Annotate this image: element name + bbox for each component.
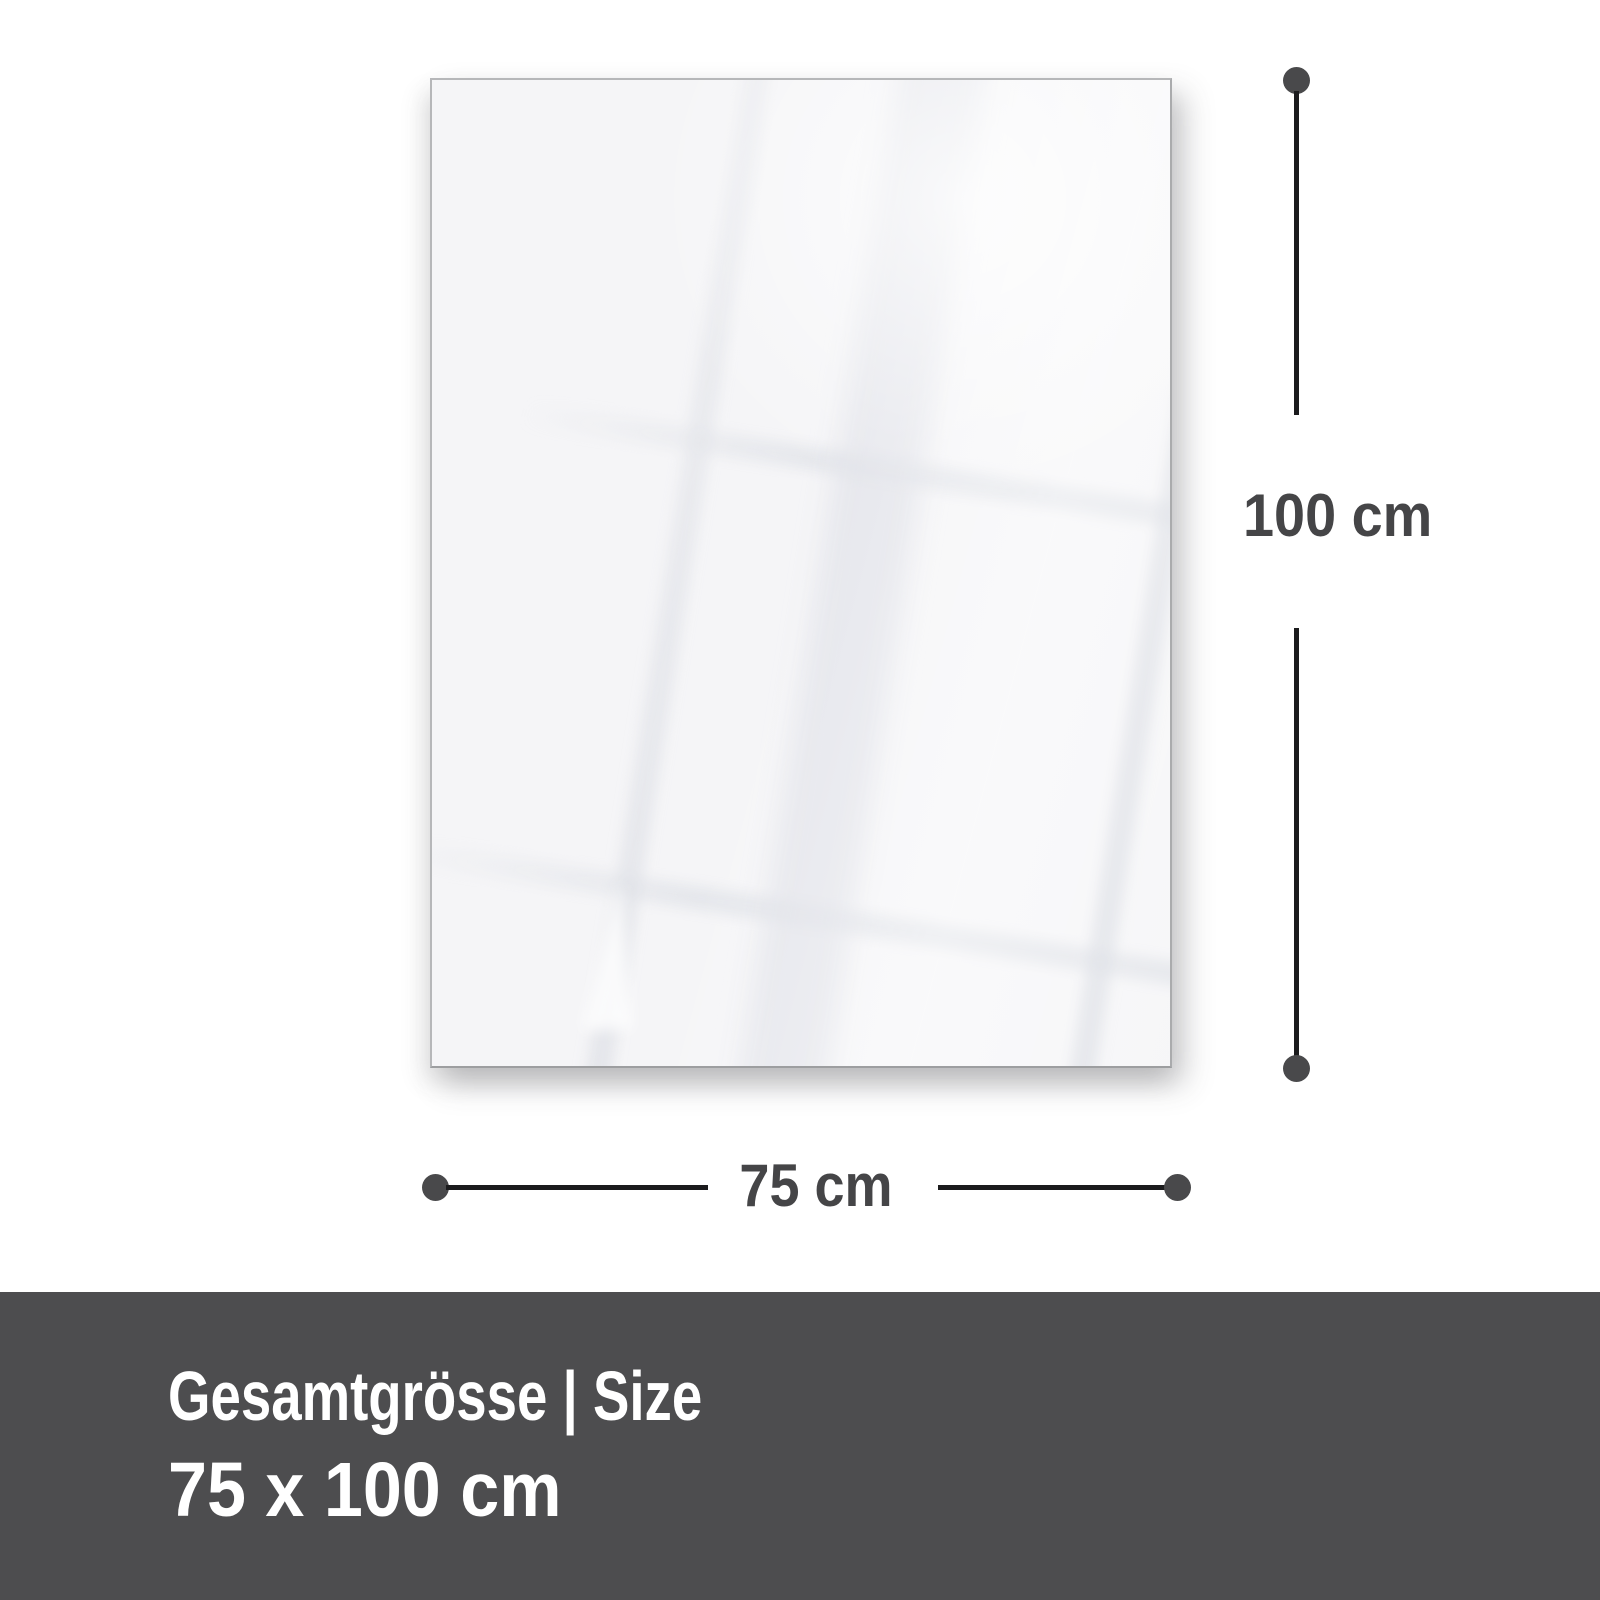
width-dim-endpoint-left [422, 1174, 449, 1201]
width-dim-segment-left [446, 1185, 708, 1190]
product-dimension-diagram: 100 cm 75 cm Gesamtgrösse | Size 75 x 10… [0, 0, 1600, 1600]
height-dimension-label: 100 cm [1243, 484, 1429, 548]
width-dimension-label: 75 cm [726, 1154, 906, 1218]
footer-title: Gesamtgrösse | Size [168, 1361, 702, 1431]
height-dim-segment-upper [1294, 91, 1299, 415]
glass-glint [582, 880, 632, 1030]
footer-size-value: 75 x 100 cm [168, 1452, 562, 1529]
height-dimension-line [1283, 67, 1311, 1082]
height-dim-segment-lower [1294, 628, 1299, 1056]
size-footer [0, 1292, 1600, 1600]
product-panel [430, 78, 1172, 1068]
glass-sheen [432, 80, 1170, 1066]
height-dim-endpoint-bottom [1283, 1055, 1310, 1082]
width-dim-segment-right [938, 1185, 1166, 1190]
height-dim-endpoint-top [1283, 67, 1310, 94]
width-dim-endpoint-right [1164, 1174, 1191, 1201]
